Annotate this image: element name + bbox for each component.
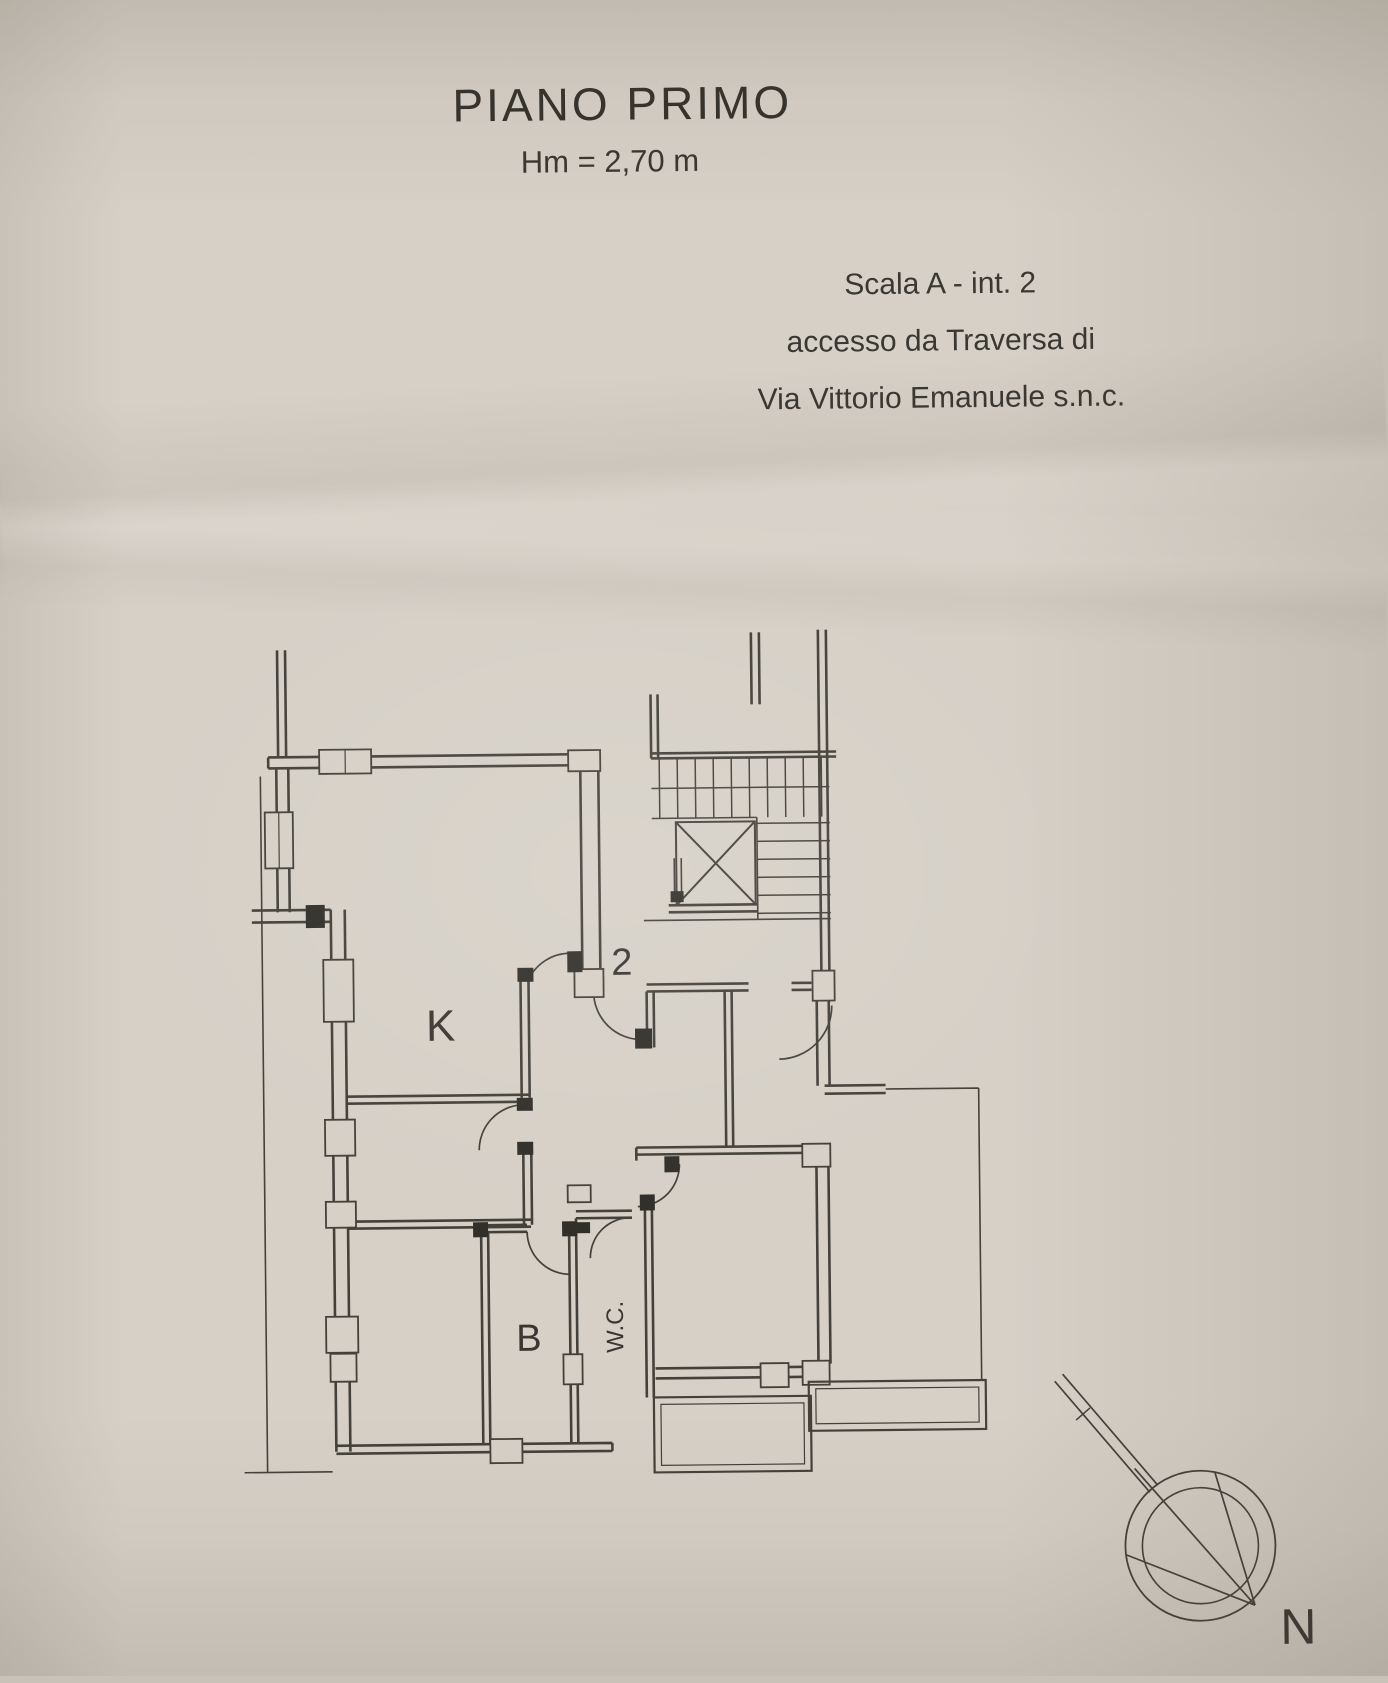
scanned-floor-plan-sheet: PIANO PRIMO Hm = 2,70 m Scala A - int. 2…	[0, 0, 1388, 1676]
stair-landing-line	[644, 919, 831, 921]
elevator-x-mark	[676, 821, 756, 905]
elevator	[676, 821, 756, 905]
paper-sheet: PIANO PRIMO Hm = 2,70 m Scala A - int. 2…	[0, 0, 1388, 1683]
middle-room-door-swing	[479, 1105, 523, 1150]
left-balcony-edge	[237, 776, 332, 1473]
wc-door-swing	[590, 1218, 630, 1258]
neighbor-door-swing	[779, 1006, 833, 1060]
stair-divider	[757, 817, 758, 919]
entry-door-swing	[594, 992, 643, 1041]
bath-label: B	[516, 1318, 542, 1360]
kitchen-door-swing	[528, 953, 571, 979]
window-and-jamb-blocks	[264, 745, 839, 1466]
compass-rose	[1055, 1372, 1277, 1622]
light-well-edge	[886, 1088, 982, 1381]
kitchen-label: K	[426, 1002, 456, 1051]
north-label: N	[1280, 1599, 1317, 1655]
compass-needle-tail	[1055, 1373, 1158, 1493]
floor-plan-drawing: 2 K B W.C. N	[0, 0, 1388, 1683]
unit-number-label: 2	[611, 942, 633, 984]
balconies	[654, 1380, 987, 1472]
wc-label: W.C.	[602, 1301, 630, 1353]
bath-door-swing	[527, 1231, 570, 1274]
